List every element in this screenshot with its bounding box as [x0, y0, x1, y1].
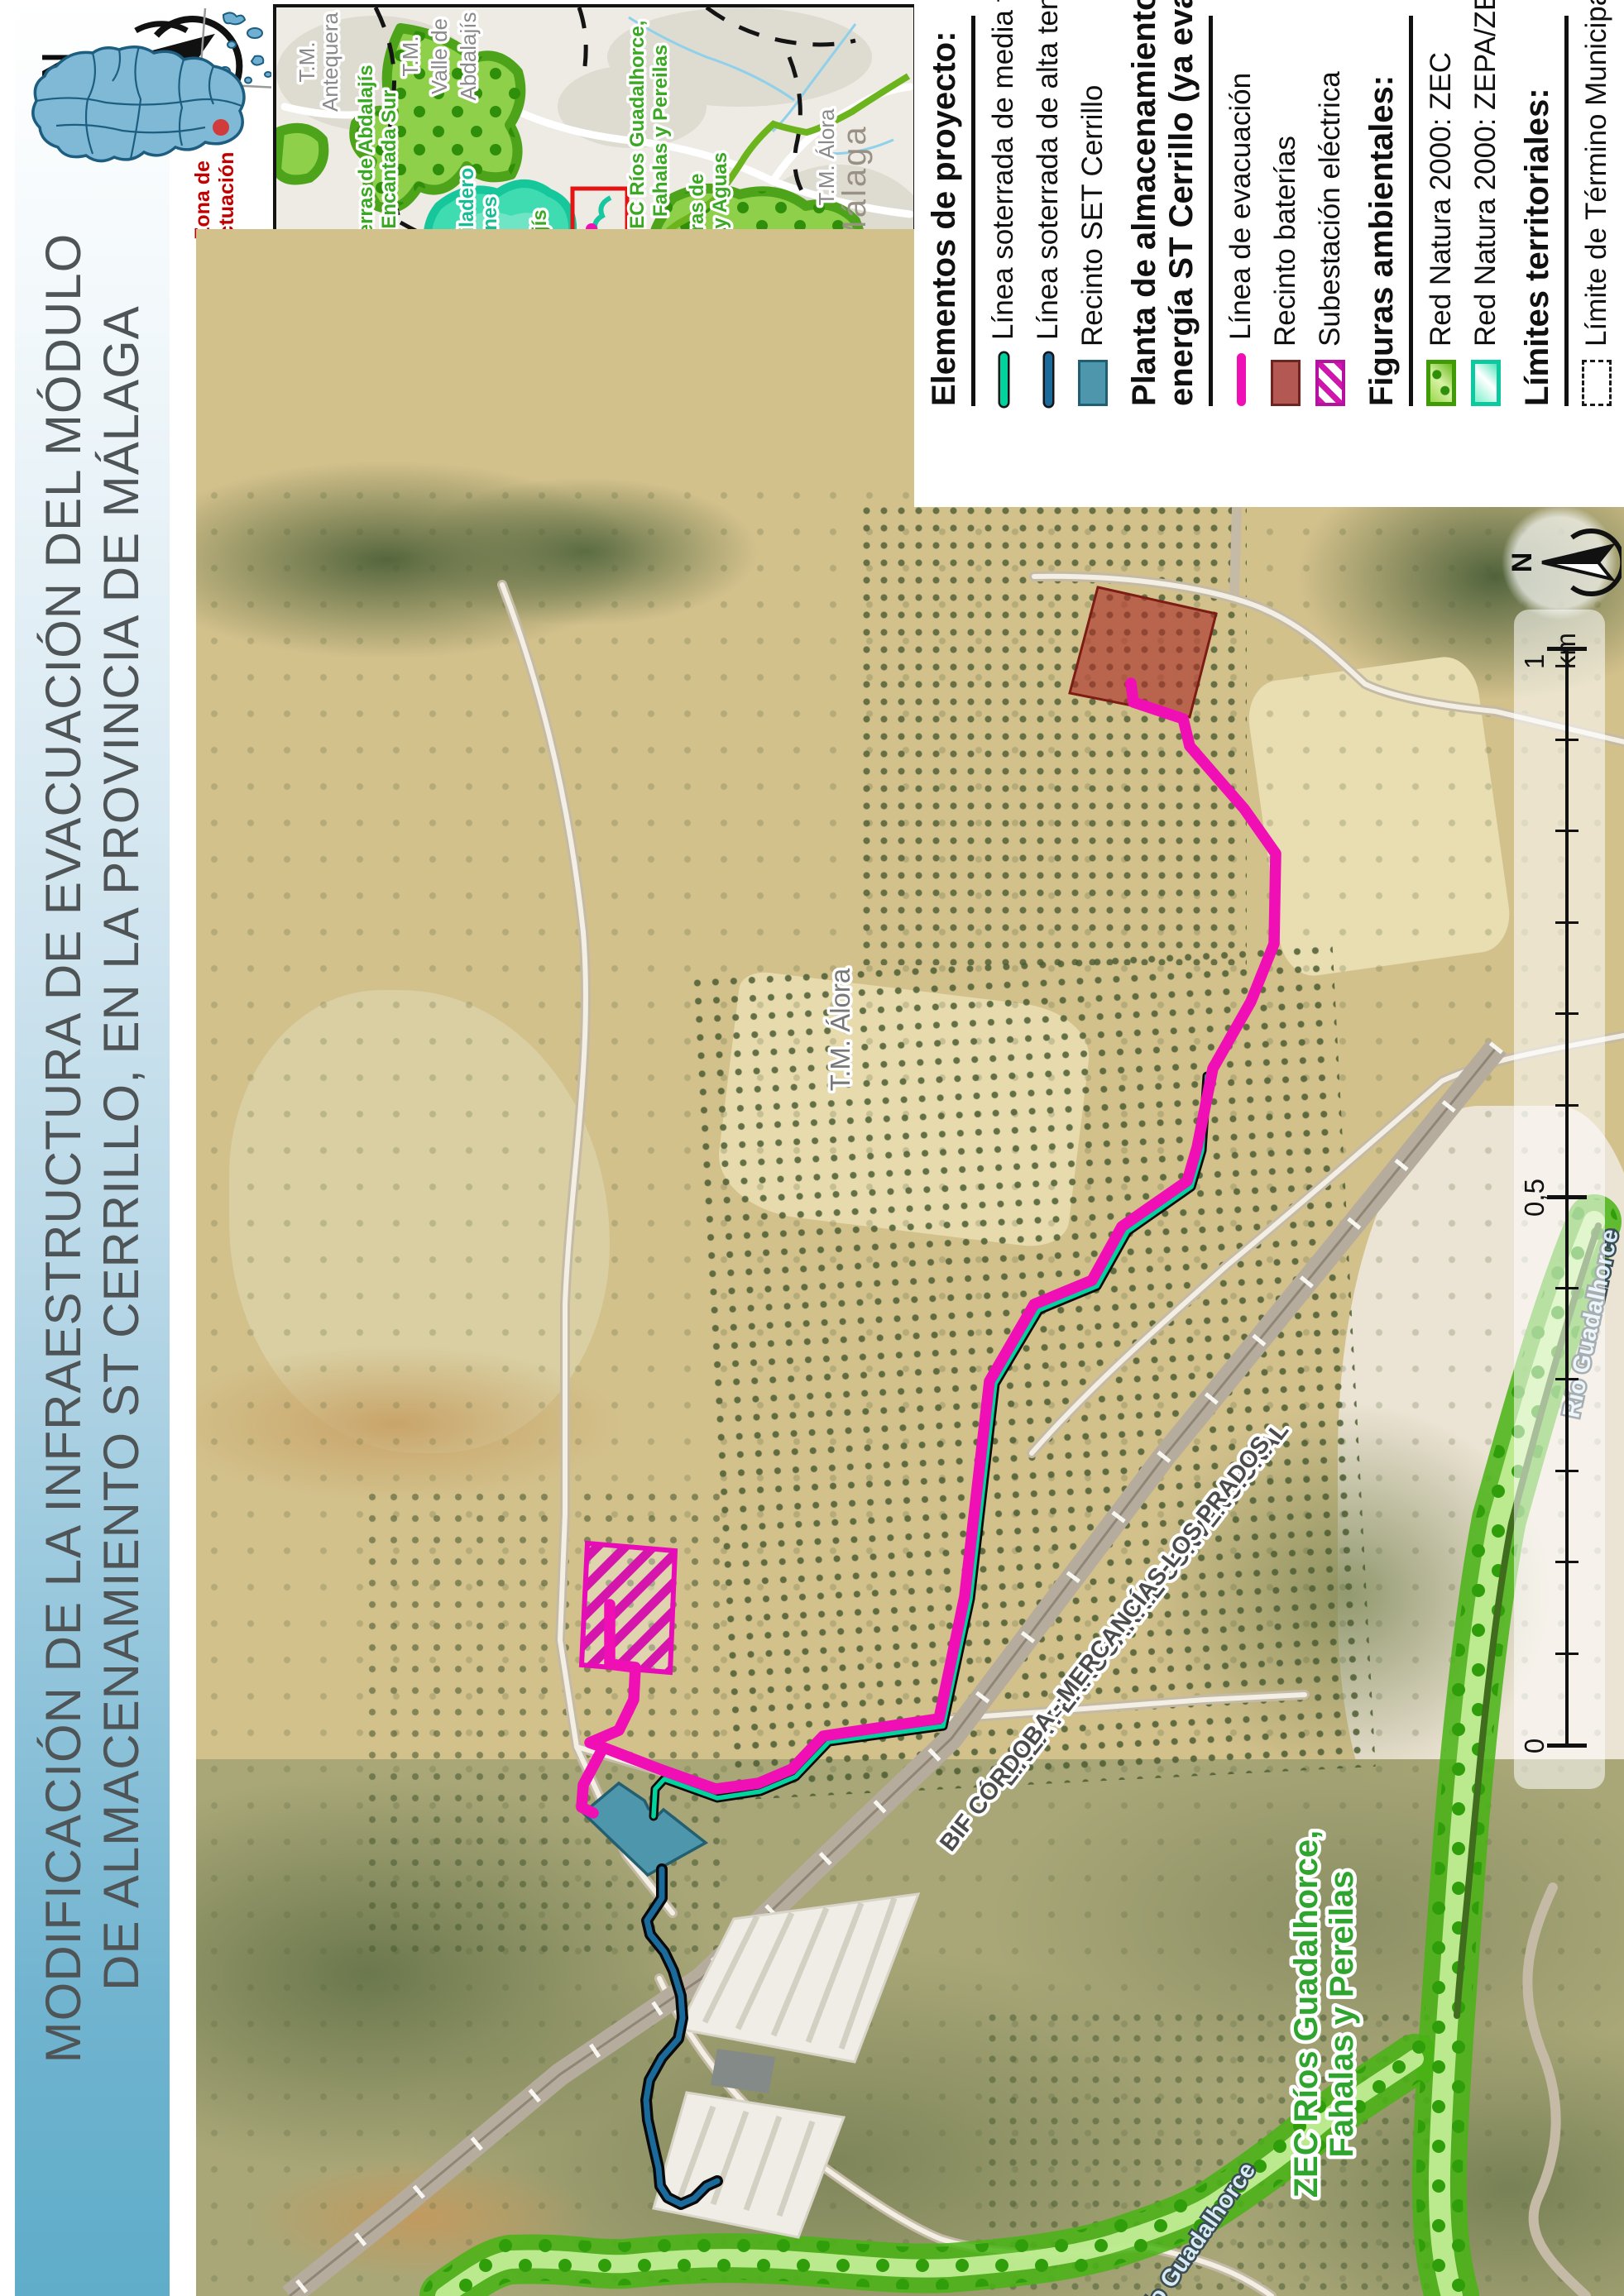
legend-header-limites: Límites territoriales: — [1519, 8, 1556, 406]
legend-panel: Elementos de proyecto: Línea soterrada d… — [914, 0, 1624, 507]
map-north-n: N — [1502, 505, 1539, 620]
svg-text:ZEC Ríos Guadalhorce,: ZEC Ríos Guadalhorce, — [626, 21, 649, 242]
legend-header-elementos: Elementos de proyecto: — [926, 8, 963, 406]
recinto-baterias-polygon — [1070, 587, 1216, 717]
limite-municipal-swatch — [1582, 360, 1612, 406]
legend-rule — [1409, 16, 1413, 406]
subestacion-polygon — [582, 1543, 675, 1672]
subestacion-swatch — [1315, 360, 1345, 406]
svg-text:Valle de: Valle de — [427, 18, 452, 94]
map-document-page: MODIFICACIÓN DE LA INFRAESTRUCTURA DE EV… — [0, 0, 1624, 2296]
map-overlays: T.M. Álora LÍNEA FERROCARRIL CONVENCIONA… — [196, 229, 1624, 2296]
recinto-set-polygon — [583, 1783, 706, 1875]
scale-label-05: 0,5 — [1519, 1179, 1550, 1217]
zona-dot — [213, 119, 229, 136]
title-banner: MODIFICACIÓN DE LA INFRAESTRUCTURA DE EV… — [15, 0, 170, 2296]
svg-text:T.M. Álora: T.M. Álora — [825, 968, 855, 1091]
alta-tension-swatch — [1045, 353, 1052, 406]
legend-header-planta-1: Planta de almacenamiento de — [1126, 8, 1163, 406]
red-natura-zepa-swatch — [1471, 360, 1501, 406]
legend-item: Red Natura 2000: ZEPA/ZEC — [1469, 8, 1502, 406]
legend-rule — [971, 16, 975, 406]
legend-header-figuras: Figuras ambientales: — [1363, 8, 1401, 406]
legend-rule — [1564, 16, 1569, 406]
legend-item: Línea de evacuación — [1224, 8, 1258, 406]
baterias-swatch — [1271, 360, 1301, 406]
scale-bar: 0 0,5 1 km — [1514, 610, 1605, 1789]
media-tension-swatch — [1000, 353, 1008, 406]
legend-header-planta-2: energía ST Cerrillo (ya evaluada) — [1163, 8, 1200, 406]
linea-evacuacion — [582, 683, 1276, 1813]
svg-text:Abdalajís: Abdalajís — [456, 12, 481, 101]
province-shape — [33, 46, 244, 161]
building-cluster — [654, 1894, 918, 2237]
svg-text:Fahalas y Pereilas: Fahalas y Pereilas — [1324, 1871, 1360, 2158]
zona-label-line1: Zona de — [191, 160, 215, 240]
grey-shed — [711, 2049, 775, 2093]
svg-text:T.M.: T.M. — [398, 36, 423, 76]
evacuacion-swatch — [1237, 353, 1246, 406]
map-north-arrow: N — [1502, 505, 1617, 620]
legend-item: Línea soterrada de alta tensión — [1032, 8, 1065, 406]
svg-text:Fahalas y Pereilas: Fahalas y Pereilas — [649, 45, 672, 217]
svg-text:Antequera: Antequera — [318, 12, 343, 112]
legend-item: Recinto baterías — [1269, 8, 1302, 406]
main-map: T.M. Álora LÍNEA FERROCARRIL CONVENCIONA… — [196, 229, 1624, 2296]
legend-item: Red Natura 2000: ZEC — [1425, 8, 1458, 406]
red-natura-zec-swatch — [1426, 360, 1456, 406]
recinto-set-swatch — [1078, 360, 1108, 406]
scale-label-0: 0 — [1519, 1739, 1550, 1753]
svg-text:ZEC Ríos Guadalhorce,: ZEC Ríos Guadalhorce, — [1288, 1830, 1325, 2198]
svg-text:T.M. Álora: T.M. Álora — [814, 108, 839, 206]
map-north-icon — [1539, 505, 1622, 620]
svg-text:T.M.: T.M. — [295, 41, 319, 82]
legend-item: Subestación eléctrica — [1314, 8, 1347, 406]
page-title-line1: MODIFICACIÓN DE LA INFRAESTRUCTURA DE EV… — [35, 233, 93, 2064]
legend-rule — [1209, 16, 1213, 406]
legend-item: Línea soterrada de media tensión — [987, 8, 1020, 406]
legend-item: Recinto SET Cerrillo — [1076, 8, 1109, 406]
page-title-line2: DE ALMACENAMIENTO ST CERRILLO, EN LA PRO… — [93, 305, 151, 1991]
legend-item: Límite de Término Municipal — [1580, 8, 1613, 406]
